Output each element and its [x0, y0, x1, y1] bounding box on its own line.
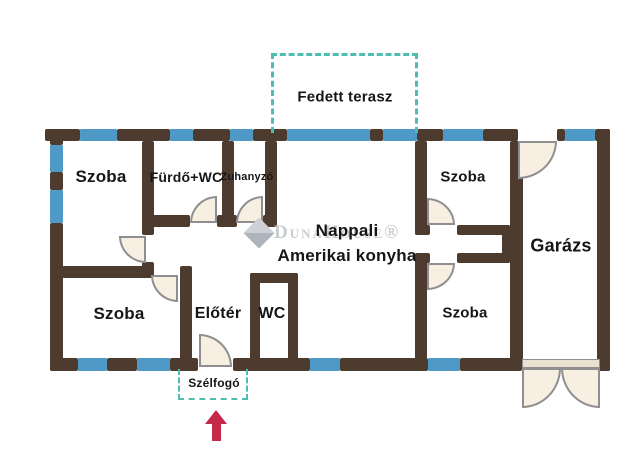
wall-left: [50, 172, 63, 190]
wall-interior: [415, 253, 427, 362]
wall-interior: [415, 141, 427, 235]
room-label-szoba-bottom-left: Szoba: [93, 304, 144, 324]
room-label-wc: WC: [258, 305, 285, 323]
door-szoba-top-left: [119, 236, 146, 263]
garage-door-leaf-right: [561, 368, 600, 408]
window: [443, 129, 483, 141]
window: [230, 129, 253, 141]
entrance-arrow-head: [205, 410, 227, 424]
room-label-eloter: Előtér: [195, 305, 242, 323]
entrance-arrow-shaft: [212, 424, 221, 441]
room-label-szoba-top-right: Szoba: [440, 169, 485, 186]
door-furdo: [190, 196, 217, 223]
door-szoba-bottom-left: [151, 275, 178, 302]
window: [50, 145, 63, 172]
door-garage-side: [518, 141, 557, 179]
window: [170, 129, 193, 141]
window: [428, 358, 460, 371]
wall-interior: [217, 215, 237, 227]
wall-left: [50, 129, 63, 145]
room-label-fedett-terasz: Fedett terasz: [297, 89, 392, 106]
window: [78, 358, 107, 371]
wall-bottom: [107, 358, 137, 371]
door-entry: [199, 334, 232, 367]
room-label-szoba-bottom-right: Szoba: [442, 305, 487, 322]
wall-top: [557, 129, 565, 141]
window: [50, 190, 63, 223]
door-szoba-top-right: [427, 198, 455, 225]
garage-door-leaf-left: [522, 368, 561, 408]
wall-right: [597, 129, 610, 371]
wall-interior: [415, 225, 430, 235]
room-label-zuhanyzo: Zuhanyzó: [221, 171, 274, 183]
wall-bottom: [50, 358, 78, 371]
wall-top: [193, 129, 230, 141]
floor-plan: DunaHouse® Fedett terasz Szoba Fürdő+WC …: [0, 0, 640, 475]
wall-interior: [62, 266, 150, 278]
garage-door-header: [522, 359, 600, 368]
wall-left: [50, 223, 63, 371]
room-label-nappali: Nappali: [316, 221, 379, 241]
watermark-diamond-icon: [243, 217, 274, 248]
door-szoba-bottom-right: [427, 263, 455, 290]
wall-interior: [502, 225, 510, 263]
room-label-furdo-wc: Fürdő+WC: [150, 169, 223, 185]
window: [137, 358, 170, 371]
room-label-szelfogo: Szélfogó: [188, 376, 240, 390]
room-label-amerikai-konyha: Amerikai konyha: [277, 246, 416, 266]
room-label-szoba-top-left: Szoba: [75, 167, 126, 187]
wall-interior: [180, 266, 192, 362]
window: [80, 129, 117, 141]
window: [565, 129, 595, 141]
wall-top: [117, 129, 170, 141]
wall-top: [483, 129, 518, 141]
wall-interior: [142, 215, 190, 227]
wall-top: [417, 129, 443, 141]
window: [310, 358, 340, 371]
room-label-garazs: Garázs: [530, 236, 591, 257]
wall-wc-right: [288, 273, 298, 362]
entrance-arrow-icon: [205, 410, 227, 441]
